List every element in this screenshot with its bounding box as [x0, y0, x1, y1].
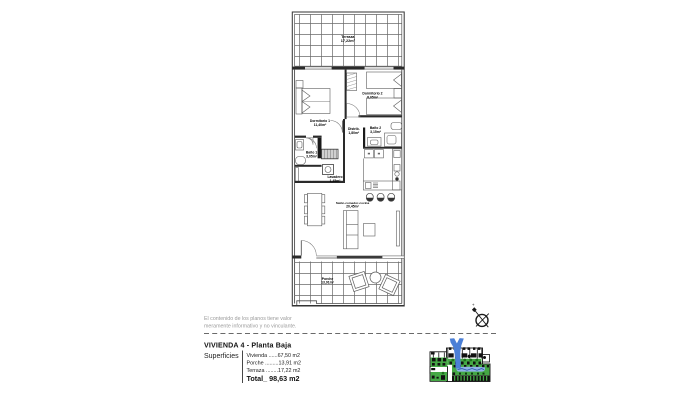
svg-text:1,80m²: 1,80m²	[348, 131, 360, 135]
svg-text:meramente informativo y no: meramente informativo y no vinculante.	[204, 324, 296, 330]
svg-text:17,22m²: 17,22m²	[341, 39, 356, 43]
svg-text:3,05m²: 3,05m²	[306, 154, 318, 158]
svg-text:20,45m²: 20,45m²	[346, 205, 359, 209]
svg-text:8,05m²: 8,05m²	[367, 95, 379, 99]
svg-text:El contenido de los planos: El contenido de los planos tiene valor	[204, 316, 292, 322]
svg-text:Vivienda ......67,50 m2: Vivienda ......67,50 m2	[247, 353, 301, 359]
svg-text:Porche .........13,91 m2: Porche .........13,91 m2	[247, 361, 302, 367]
svg-text:1,45m²: 1,45m²	[330, 179, 342, 183]
svg-text:Total_ 98,63 m2: Total_ 98,63 m2	[247, 374, 300, 383]
svg-text:11,40m²: 11,40m²	[314, 123, 327, 127]
svg-text:VIVIENDA 4 - Planta Baja: VIVIENDA 4 - Planta Baja	[204, 341, 291, 349]
svg-text:Superficies: Superficies	[204, 353, 239, 360]
svg-text:3,15m²: 3,15m²	[370, 130, 382, 134]
svg-text:13,91m²: 13,91m²	[321, 281, 334, 285]
